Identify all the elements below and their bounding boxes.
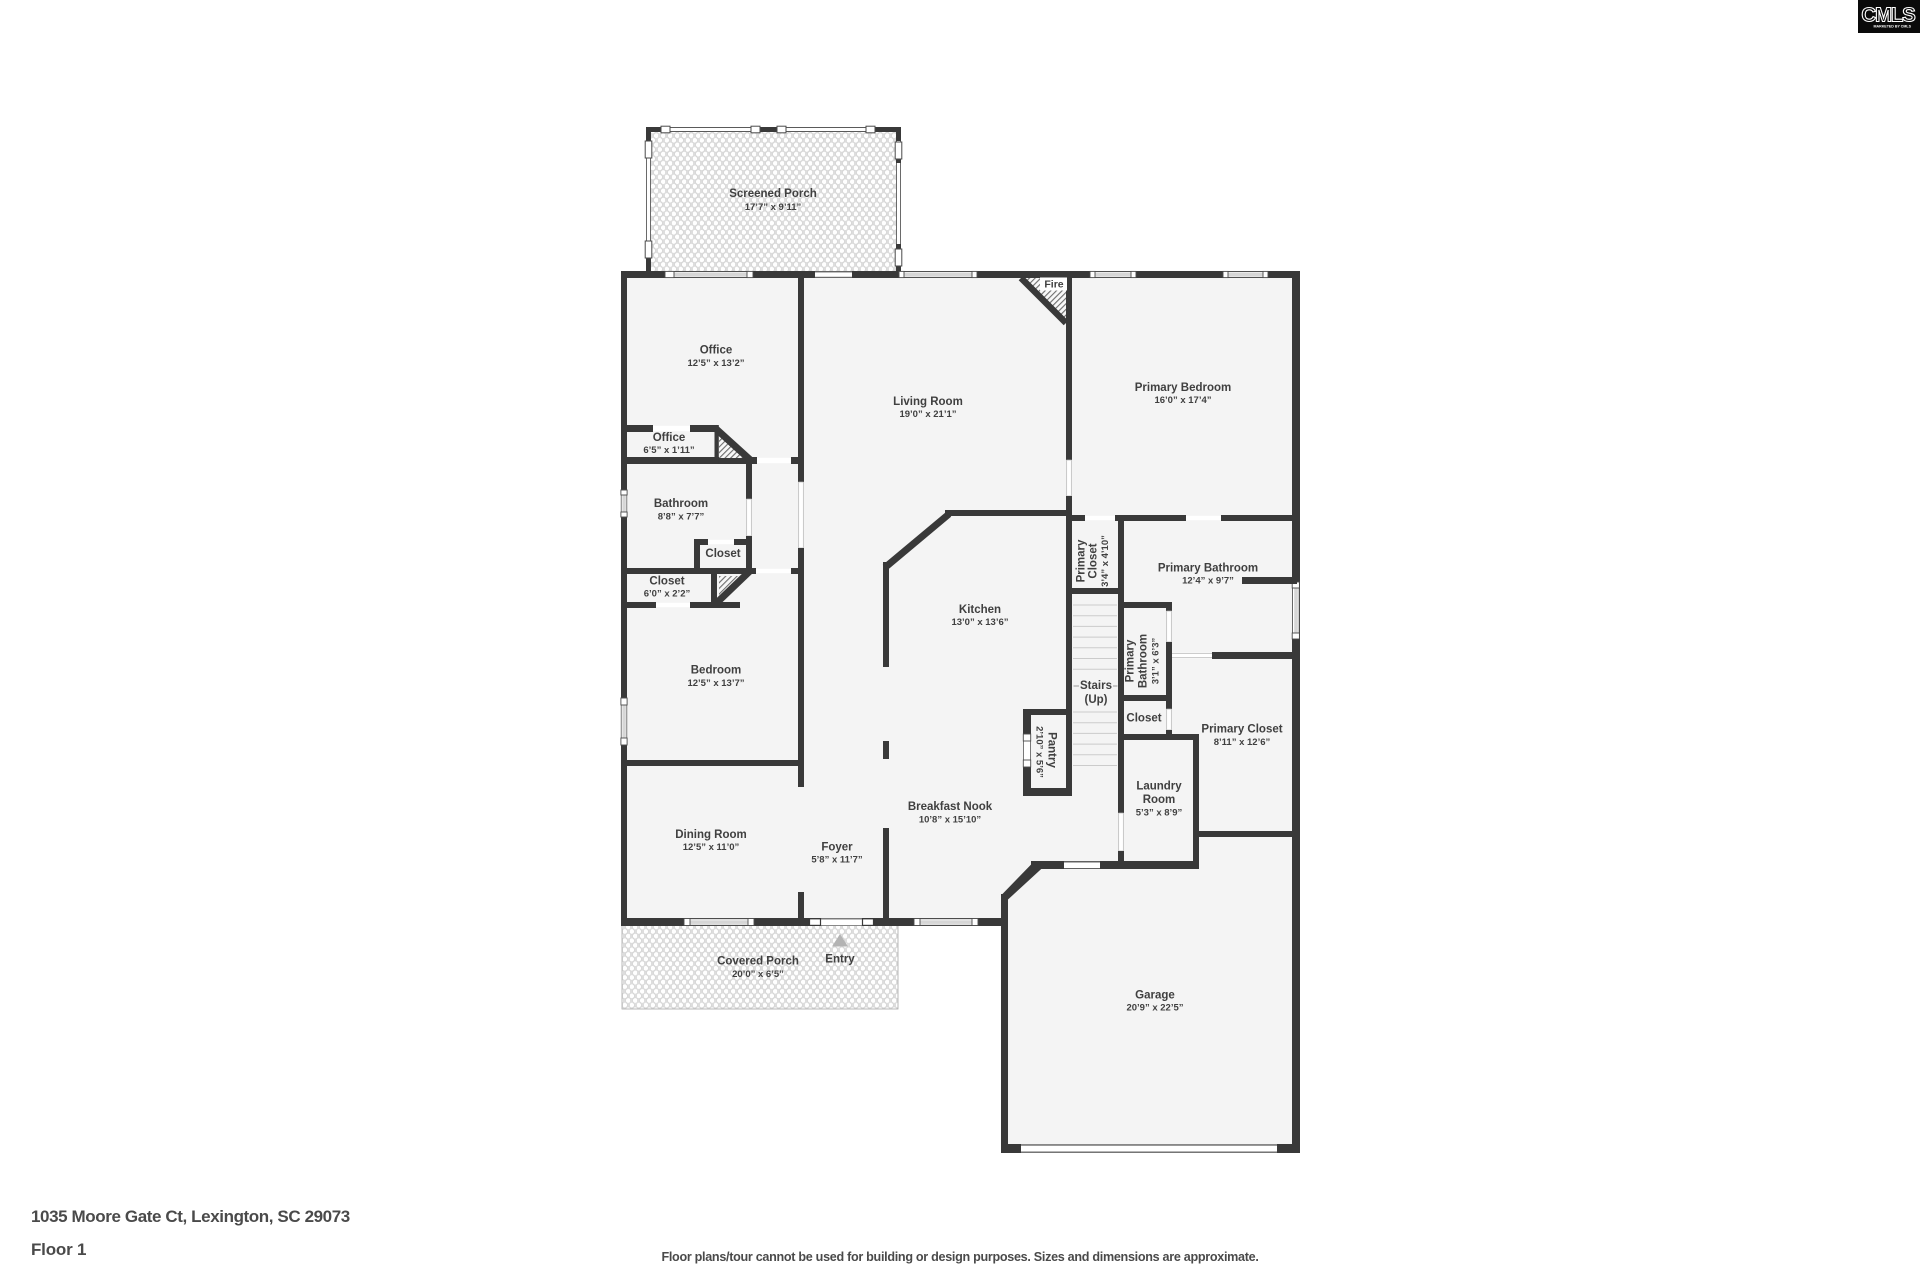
- svg-text:Office: Office: [700, 345, 733, 357]
- svg-text:Screened Porch: Screened Porch: [729, 188, 817, 200]
- svg-text:12’4” x 9’7”: 12’4” x 9’7”: [1182, 576, 1234, 587]
- svg-text:Dining Room: Dining Room: [675, 829, 747, 841]
- svg-text:16’0” x 17’4”: 16’0” x 17’4”: [1154, 395, 1211, 406]
- svg-text:Bedroom: Bedroom: [691, 665, 741, 677]
- svg-text:Primary Closet: Primary Closet: [1201, 724, 1282, 736]
- svg-text:Covered Porch: Covered Porch: [717, 956, 799, 968]
- svg-text:Primary Bedroom: Primary Bedroom: [1135, 382, 1232, 394]
- svg-text:3’4” x 4’10”: 3’4” x 4’10”: [1100, 535, 1111, 587]
- svg-text:1035 Moore Gate Ct, Lexington,: 1035 Moore Gate Ct, Lexington, SC 29073: [31, 1207, 350, 1226]
- svg-text:Kitchen: Kitchen: [959, 604, 1001, 616]
- svg-text:5’3” x 8’9”: 5’3” x 8’9”: [1136, 808, 1183, 819]
- svg-text:19’0” x 21’1”: 19’0” x 21’1”: [899, 409, 956, 420]
- svg-text:Primary: Primary: [1125, 639, 1137, 682]
- svg-text:6’0” x 2’2”: 6’0” x 2’2”: [644, 589, 691, 600]
- svg-text:20’9” x 22’5”: 20’9” x 22’5”: [1126, 1003, 1183, 1014]
- svg-text:10’8” x 15’10”: 10’8” x 15’10”: [919, 815, 982, 826]
- svg-text:Living Room: Living Room: [893, 396, 963, 408]
- svg-text:Primary: Primary: [1076, 539, 1088, 582]
- svg-text:8’11” x 12’6”: 8’11” x 12’6”: [1214, 737, 1271, 748]
- svg-text:12’5” x 13’7”: 12’5” x 13’7”: [687, 678, 744, 689]
- svg-text:Laundry: Laundry: [1136, 781, 1182, 793]
- svg-text:8’8” x 7’7”: 8’8” x 7’7”: [658, 512, 705, 523]
- svg-text:MARKETED BY CMLS: MARKETED BY CMLS: [1874, 25, 1912, 29]
- svg-text:Stairs: Stairs: [1080, 680, 1112, 692]
- svg-text:Bathroom: Bathroom: [654, 498, 708, 510]
- svg-text:Closet: Closet: [1088, 543, 1100, 578]
- svg-text:Room: Room: [1143, 794, 1176, 806]
- svg-text:Floor 1: Floor 1: [31, 1240, 86, 1259]
- svg-text:Bathroom: Bathroom: [1138, 634, 1150, 688]
- svg-text:(Up): (Up): [1085, 694, 1108, 706]
- svg-text:Pantry: Pantry: [1046, 732, 1058, 768]
- svg-text:Entry: Entry: [825, 954, 855, 966]
- svg-text:12’5” x 11’0”: 12’5” x 11’0”: [683, 842, 740, 853]
- svg-text:20’0” x 6’5”: 20’0” x 6’5”: [732, 969, 784, 980]
- svg-text:Breakfast Nook: Breakfast Nook: [908, 801, 993, 813]
- svg-text:Garage: Garage: [1135, 990, 1175, 1002]
- svg-text:Closet: Closet: [705, 548, 740, 560]
- svg-text:Office: Office: [653, 432, 686, 444]
- svg-text:CMLS: CMLS: [1861, 4, 1915, 27]
- svg-text:Foyer: Foyer: [821, 842, 853, 854]
- svg-text:Fire: Fire: [1044, 279, 1063, 291]
- svg-text:6’5” x 1’11”: 6’5” x 1’11”: [643, 445, 694, 456]
- svg-text:Floor plans/tour cannot be use: Floor plans/tour cannot be used for buil…: [661, 1250, 1258, 1264]
- svg-text:17’7” x 9’11”: 17’7” x 9’11”: [745, 202, 802, 213]
- svg-text:2’10” x 5’6”: 2’10” x 5’6”: [1034, 726, 1045, 778]
- svg-text:12’5” x 13’2”: 12’5” x 13’2”: [687, 358, 744, 369]
- svg-text:3’1” x 6’3”: 3’1” x 6’3”: [1151, 638, 1162, 685]
- svg-text:5’8” x 11’7”: 5’8” x 11’7”: [811, 855, 862, 866]
- svg-text:13’0” x 13’6”: 13’0” x 13’6”: [951, 617, 1008, 628]
- svg-text:Closet: Closet: [649, 576, 684, 588]
- svg-text:Closet: Closet: [1126, 713, 1161, 725]
- svg-text:Primary Bathroom: Primary Bathroom: [1158, 563, 1258, 575]
